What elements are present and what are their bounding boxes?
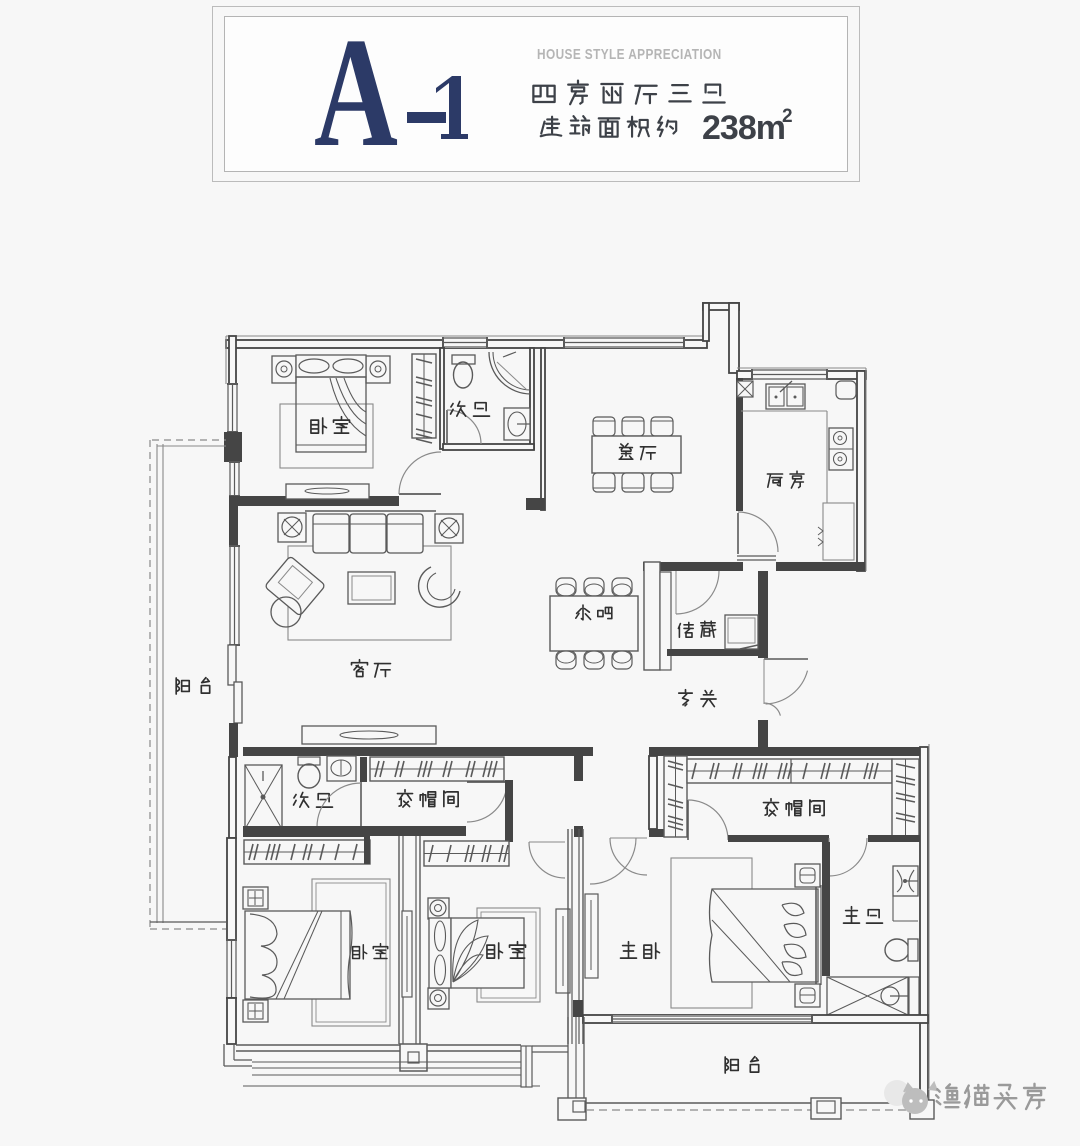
svg-text:2: 2 xyxy=(782,106,793,127)
svg-text:238m: 238m xyxy=(702,109,785,147)
